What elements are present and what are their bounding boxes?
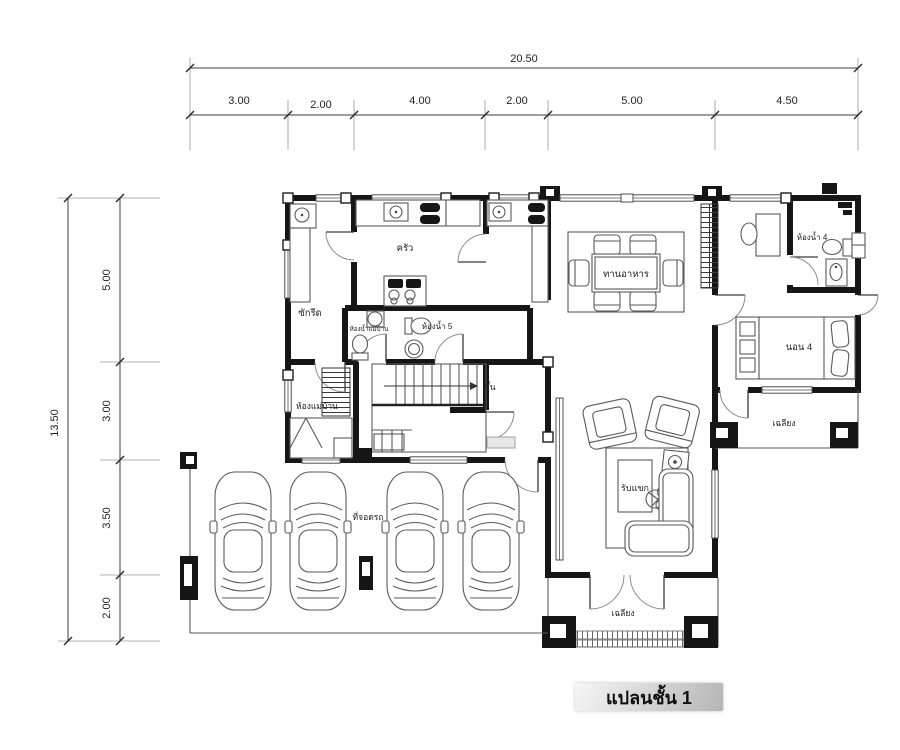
room-label-living: รับแขก xyxy=(621,483,649,493)
room-label-porch-right: เฉลียง xyxy=(772,418,795,428)
stairs xyxy=(372,364,515,452)
top-dimension: 20.50 3.00 2.00 4.00 2.00 5.00 4.50 xyxy=(186,53,862,150)
dining-shelf xyxy=(701,204,718,288)
room-label-dining: ทานอาหาร xyxy=(603,269,649,280)
dim-top-seg-3: 4.00 xyxy=(409,95,430,107)
dim-top-seg-6: 4.50 xyxy=(776,95,797,107)
room-label-maid-bath: ห้องน้ำแม่บ้าน xyxy=(350,324,390,333)
entry-step xyxy=(487,437,515,448)
dim-top-seg-5: 5.00 xyxy=(621,95,642,107)
room-label-carport: ที่จอดรถ xyxy=(353,511,384,522)
room-label-bath5: ห้องน้ำ 5 xyxy=(422,320,453,331)
kitchen-counters xyxy=(356,200,480,226)
dim-left-seg-3: 3.50 xyxy=(101,507,113,528)
car xyxy=(210,472,276,610)
maid-room-furniture xyxy=(290,368,352,458)
living-furniture xyxy=(582,395,701,556)
dim-left-total: 13.50 xyxy=(49,409,61,437)
dim-left-seg-2: 3.00 xyxy=(101,400,113,421)
laundry-appliances xyxy=(384,276,426,306)
room-label-porch-front: เฉลียง xyxy=(611,608,634,618)
carport xyxy=(180,448,548,633)
dim-left-seg-4: 2.00 xyxy=(101,597,113,618)
floor-plan-title: แปลนชั้น 1 xyxy=(606,683,692,712)
car xyxy=(382,472,448,610)
dim-top-seg-4: 2.00 xyxy=(506,95,527,107)
dim-left-seg-1: 5.00 xyxy=(101,269,113,290)
car xyxy=(458,472,524,610)
bed4-furniture xyxy=(736,214,855,379)
car xyxy=(285,472,351,610)
room-label-bath4: ห้องน้ำ 4 xyxy=(797,231,828,242)
floor-plan-title-badge: แปลนชั้น 1 xyxy=(575,683,723,711)
left-dimension: 13.50 5.00 3.00 3.50 2.00 xyxy=(49,194,160,645)
pantry-counters xyxy=(487,200,548,302)
laundry-fixtures xyxy=(290,204,316,302)
dim-top-seg-1: 3.00 xyxy=(228,95,249,107)
floor-plan-drawing: 20.50 3.00 2.00 4.00 2.00 5.00 4.50 13.5… xyxy=(0,0,900,750)
dim-top-seg-2: 2.00 xyxy=(310,99,331,111)
room-label-kitchen: ครัว xyxy=(397,243,414,254)
dim-top-total: 20.50 xyxy=(510,53,538,65)
floor-plan-page: 20.50 3.00 2.00 4.00 2.00 5.00 4.50 13.5… xyxy=(0,0,900,750)
stairs-up-label: ขึ้น xyxy=(484,381,496,392)
room-label-laundry: ซักรีด xyxy=(298,307,321,319)
room-label-bed4: นอน 4 xyxy=(786,342,813,353)
maid-bath-fixtures xyxy=(352,311,384,360)
room-label-maid-room: ห้องแม่บ้าน xyxy=(296,401,338,411)
